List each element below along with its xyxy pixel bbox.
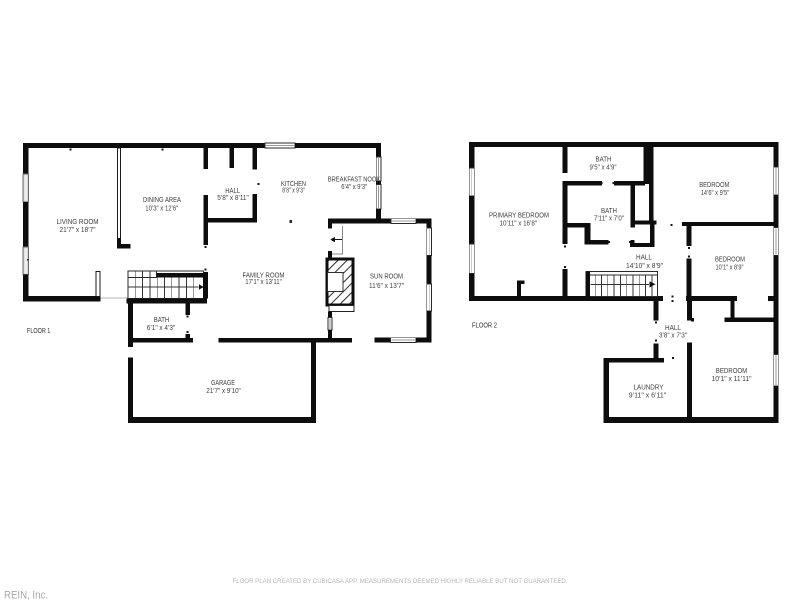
svg-text:10’1" x 11’11": 10’1" x 11’11": [712, 376, 752, 383]
svg-text:6’1" x 4’3": 6’1" x 4’3": [147, 325, 176, 332]
svg-text:9’5" x 4’9": 9’5" x 4’9": [590, 165, 617, 172]
svg-text:14’10" x 8’9": 14’10" x 8’9": [626, 263, 663, 270]
svg-text:HALL: HALL: [665, 323, 681, 332]
svg-text:PRIMARY BEDROOM: PRIMARY BEDROOM: [489, 210, 549, 219]
svg-text:21’7" x 9’10": 21’7" x 9’10": [206, 388, 241, 395]
svg-text:HALL: HALL: [636, 253, 652, 262]
svg-text:BATH: BATH: [601, 206, 617, 215]
svg-text:3’8" x 7’3": 3’8" x 7’3": [659, 332, 687, 339]
svg-text:FLOOR PLAN CREATED BY CUBICASA: FLOOR PLAN CREATED BY CUBICASA APP. MEAS…: [233, 578, 568, 585]
svg-text:6’4" x 9’3": 6’4" x 9’3": [341, 184, 367, 191]
svg-text:14’6" x 9’5": 14’6" x 9’5": [701, 190, 730, 197]
svg-text:LIVING ROOM: LIVING ROOM: [57, 217, 99, 226]
svg-text:BREAKFAST NOOK: BREAKFAST NOOK: [328, 174, 381, 183]
svg-text:REIN, Inc.: REIN, Inc.: [4, 590, 48, 600]
svg-text:BATH: BATH: [154, 315, 170, 324]
svg-text:BEDROOM: BEDROOM: [716, 366, 748, 375]
svg-text:BEDROOM: BEDROOM: [715, 255, 745, 264]
svg-text:DINING AREA: DINING AREA: [143, 195, 181, 204]
svg-text:5’8" x 8’11": 5’8" x 8’11": [217, 195, 249, 202]
svg-text:17’1" x 13’11": 17’1" x 13’11": [245, 279, 282, 286]
svg-text:10’11" x 16’8": 10’11" x 16’8": [500, 220, 538, 227]
svg-text:BEDROOM: BEDROOM: [699, 180, 729, 189]
svg-text:8’8" x 9’3": 8’8" x 9’3": [282, 188, 305, 195]
svg-text:10’1" x 8’9": 10’1" x 8’9": [716, 265, 744, 272]
svg-text:FLOOR 2: FLOOR 2: [472, 321, 497, 330]
svg-text:BATH: BATH: [596, 155, 612, 164]
svg-text:FLOOR 1: FLOOR 1: [27, 326, 50, 335]
svg-text:HALL: HALL: [225, 186, 240, 195]
svg-text:SUN ROOM: SUN ROOM: [370, 272, 403, 281]
svg-text:9’11" x 6’11": 9’11" x 6’11": [629, 392, 667, 399]
svg-text:7’11" x 7’0": 7’11" x 7’0": [594, 216, 624, 223]
svg-text:21’7" x 18’7": 21’7" x 18’7": [60, 227, 96, 234]
svg-text:10’3" x 12’6": 10’3" x 12’6": [145, 206, 178, 213]
svg-text:11’6" x 13’7": 11’6" x 13’7": [369, 283, 404, 290]
svg-text:GARAGE: GARAGE: [211, 378, 235, 387]
svg-text:LAUNDRY: LAUNDRY: [634, 383, 664, 392]
